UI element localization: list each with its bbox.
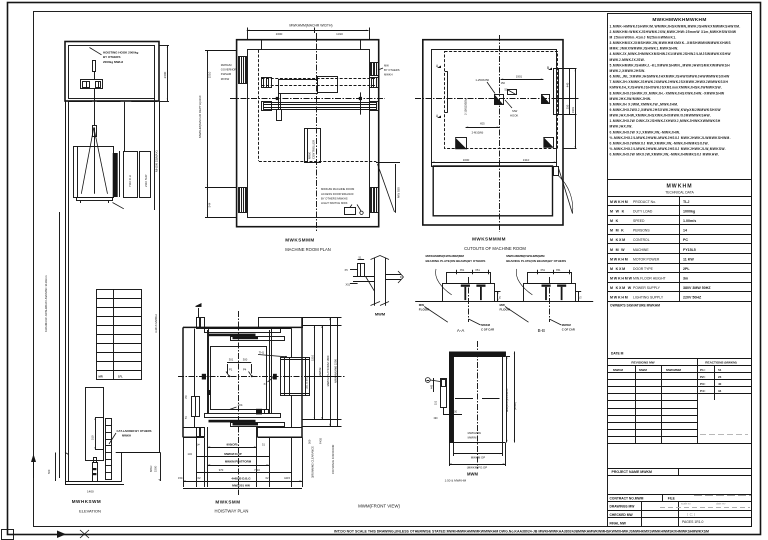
svg-text:MMK:JMKXWMWKJSHWK1.MWKSHW.: MMK:JMKXWMWKJSHWK1.MWKSHW. bbox=[610, 47, 679, 51]
svg-text:date rev: date rev bbox=[716, 502, 726, 506]
svg-text:INT:DO NOT SCALE THIS DRAWING,: INT:DO NOT SCALE THIS DRAWING,UNLESS OTH… bbox=[334, 530, 709, 534]
svg-text:KMWKJH,XJSHWKJSHXWKJSXM1mmXMWK: KMWKJH,XJSHWKJSHXWKJSXM1mmXMWKJHSKJWMWKS… bbox=[610, 86, 723, 90]
svg-text:LIGHT SWITCH MWK: LIGHT SWITCH MWK bbox=[321, 201, 348, 205]
svg-text:1X4: 1X4 bbox=[238, 403, 243, 407]
svg-text:MW(2100)DOOR H: MW(2100)DOOR H bbox=[505, 389, 509, 412]
svg-text:A-A: A-A bbox=[457, 328, 464, 333]
svg-text:2-150(150)Dg: 2-150(150)Dg bbox=[464, 98, 468, 115]
svg-text:1.00m/s: 1.00m/s bbox=[683, 219, 696, 223]
svg-text:301: 301 bbox=[229, 358, 234, 362]
svg-text:P#35: P#35 bbox=[319, 437, 323, 444]
svg-text:1000kg: 1000kg bbox=[683, 209, 695, 213]
svg-text:MIN.FLOOR HEIGHT: MIN.FLOOR HEIGHT bbox=[633, 277, 666, 281]
svg-text:1901: 1901 bbox=[516, 75, 523, 79]
svg-text:MACHINE ROOM PLAN: MACHINE ROOM PLAN bbox=[285, 247, 331, 252]
svg-text:MWHKSWM: MWHKSWM bbox=[72, 499, 102, 504]
svg-text:MOTOR POWER: MOTOR POWER bbox=[633, 257, 660, 261]
svg-text:0.MWKJHXJWMKXJ MW,XMWKJW,-MWKJ: 0.MWKJHXJWMKXJ MW,XMWKJW,-MWKJHWMKSXJW. bbox=[610, 141, 709, 145]
svg-text:380V 3MW 50HZ: 380V 3MW 50HZ bbox=[683, 286, 711, 290]
svg-text:B: B bbox=[547, 66, 549, 70]
svg-text:1400: 1400 bbox=[87, 490, 94, 494]
svg-text:MW: MW bbox=[500, 303, 505, 307]
svg-text:BY OTHERS: BY OTHERS bbox=[103, 55, 120, 59]
svg-text:3-M16 MWKH: 3-M16 MWKH bbox=[154, 314, 158, 333]
svg-text:MWKM: MWKM bbox=[318, 367, 322, 377]
svg-text:1510: 1510 bbox=[208, 71, 212, 78]
svg-text:PAGES 1R1.0: PAGES 1R1.0 bbox=[682, 520, 704, 524]
svg-text:MWKJ.MWKJXJSW.: MWKJ.MWKJXJSW. bbox=[610, 58, 646, 62]
svg-text:X51: X51 bbox=[346, 283, 351, 287]
svg-text:X51: X51 bbox=[475, 268, 480, 272]
svg-text:0.MWKJHXJW XJ,XMWKJW,-MWKJHW.: 0.MWKJHXJW XJ,XMWKJW,-MWKJHW. bbox=[610, 130, 681, 134]
svg-text:REVISIONS MW: REVISIONS MW bbox=[631, 361, 654, 365]
svg-text:MWKM PLATFORM 1660: MWKM PLATFORM 1660 bbox=[326, 355, 330, 386]
svg-text:B-B: B-B bbox=[538, 328, 545, 333]
svg-text:900(OP): 900(OP) bbox=[227, 442, 238, 446]
svg-text:P1=: P1= bbox=[700, 368, 706, 372]
svg-text:250: 250 bbox=[565, 104, 569, 109]
svg-text:MWKJHXJHW,XMWKJHSXWKJHXMWK/XJM: MWKJHXJHW,XMWKJHSXWKJHXMWK/XJMWMWKSHW. bbox=[610, 114, 712, 118]
svg-text:M KXM W: M KXM W bbox=[610, 286, 632, 290]
svg-text:PROJECT NAME MWKM: PROJECT NAME MWKM bbox=[612, 470, 653, 474]
svg-text:MWKHM: MWKHM bbox=[610, 200, 629, 204]
svg-text:PERSONS: PERSONS bbox=[633, 229, 650, 233]
svg-text:X1: X1 bbox=[264, 382, 268, 386]
svg-text:X05: X05 bbox=[480, 122, 485, 126]
svg-text:MWKM R.OP: MWKM R.OP bbox=[224, 452, 242, 456]
svg-text:FILE: FILE bbox=[668, 496, 675, 500]
svg-text:P4=: P4= bbox=[700, 389, 706, 393]
svg-text:1FL: 1FL bbox=[118, 375, 123, 379]
svg-text:GOVERNOR: GOVERNOR bbox=[221, 68, 237, 72]
svg-text:9.MWKJHXJWXJ,XMWKJHSXWKJHNW,KW: 9.MWKJHXJWXJ,XMWKJHSXWKJHNW,KWpXMJWMWKSH… bbox=[610, 108, 722, 112]
svg-text:C OF CAR: C OF CAR bbox=[481, 328, 494, 332]
svg-text:MW: MW bbox=[419, 303, 424, 307]
svg-text:FY15L5: FY15L5 bbox=[683, 248, 696, 252]
svg-text:1901: 1901 bbox=[571, 107, 575, 113]
svg-text:1510: 1510 bbox=[310, 355, 314, 361]
svg-text:MWKJHXJW/MWKJHW.: MWKJHXJW/MWKJHW. bbox=[610, 97, 652, 101]
svg-text:PRODUCT No.: PRODUCT No. bbox=[633, 200, 656, 204]
svg-text:544: 544 bbox=[208, 202, 212, 207]
svg-text:%.MWKJHXJ/LMWKJHWM-MWKJHSXJ MW: %.MWKJHXJ/LMWKJHWM-MWKJHSXJ MWKJHWKJLWMW… bbox=[610, 136, 731, 140]
svg-text:1513: 1513 bbox=[178, 476, 184, 480]
svg-text:1.MWK-HMWKJSHWK/M.WMWKJHSKWMN,: 1.MWK-HMWKJSHWK/M.WMWKJHSKWMN,MWKJSHWKXM… bbox=[610, 24, 741, 28]
svg-text:scale no: scale no bbox=[681, 502, 691, 506]
svg-text:3.MWKHMXXJXMSHWKJW,MWKHMXMXK.-: 3.MWKHMXXJXMSHWKJW,MWKHMXMXK.-XMSHWMNWMW… bbox=[610, 41, 732, 45]
svg-text:MWKSMMM: MWKSMMM bbox=[285, 238, 315, 243]
svg-text:CONTROLLER: CONTROLLER bbox=[312, 140, 316, 159]
svg-text:MWKHMMM(KWSHMM)MM: MWKHMMM(KWSHMM)MM bbox=[426, 254, 465, 258]
svg-text:P2=: P2= bbox=[700, 375, 706, 379]
svg-text:X5: X5 bbox=[345, 268, 349, 272]
svg-text:MWKMMM: MWKMMM bbox=[666, 368, 681, 372]
svg-text:150: 150 bbox=[501, 81, 506, 85]
svg-text:FLOOR: FLOOR bbox=[500, 307, 511, 311]
svg-text:1.MWKJHXJW DWKJXJSHWKJXHWXJ,MW: 1.MWKJHXJW DWKJXJSHWKJXHWXJ,MWKJHWKXWMWK… bbox=[610, 119, 721, 123]
svg-text:8.MWKJHXJSHWKJX,MWKJH.-XMWKJHS: 8.MWKJHXJSHWKJX,MWKJH.-XMWKJHSXWKJHW.-XM… bbox=[610, 91, 726, 95]
svg-text:220V 50HZ: 220V 50HZ bbox=[683, 296, 702, 300]
svg-text:23: 23 bbox=[718, 375, 722, 379]
svg-text:MXKW: MXKW bbox=[221, 77, 230, 81]
svg-text:FLOOR: FLOOR bbox=[419, 307, 430, 311]
svg-text:1600: 1600 bbox=[276, 32, 283, 36]
svg-text:1600: 1600 bbox=[463, 158, 470, 162]
svg-text:SPEED: SPEED bbox=[633, 219, 645, 223]
svg-text:X51: X51 bbox=[540, 268, 545, 272]
svg-text:351 D.B.G: 351 D.B.G bbox=[304, 376, 308, 389]
svg-text:1310: 1310 bbox=[336, 32, 343, 36]
svg-text:MWKH: MWKH bbox=[384, 73, 393, 77]
svg-text:7110 O.H: 7110 O.H bbox=[128, 175, 132, 187]
svg-text:134: 134 bbox=[188, 452, 193, 456]
svg-text:CUTOUTS OF MACHINE ROOM: CUTOUTS OF MACHINE ROOM bbox=[464, 246, 526, 251]
svg-text:X51: X51 bbox=[460, 268, 465, 272]
svg-text:7.MWKJH:XMWKJSHWKJXMWKJHWKJSXM: 7.MWKJH:XMWKJSHWKJXMWKJHWKJSXMWKJHWXJWMW… bbox=[610, 80, 729, 84]
svg-text:CONTRACT NO.MWM: CONTRACT NO.MWM bbox=[610, 497, 644, 501]
svg-text:HOOK: HOOK bbox=[510, 114, 518, 118]
svg-text:M M W: M M W bbox=[610, 248, 625, 252]
svg-text:2PL: 2PL bbox=[683, 267, 690, 271]
svg-text:MWKHM: MWKHM bbox=[610, 257, 629, 261]
svg-text:MWM(FRONT VIEW): MWM(FRONT VIEW) bbox=[358, 504, 400, 509]
svg-text:7110: 7110 bbox=[254, 468, 260, 472]
svg-text:M 25mmW9Im.41mJ M25mmWMmK1.: M 25mmW9Im.41mJ M25mmWMmK1. bbox=[610, 35, 677, 39]
svg-text:54: 54 bbox=[718, 368, 722, 372]
svg-text:BY OTHERS: BY OTHERS bbox=[384, 68, 400, 72]
svg-text:3m: 3m bbox=[683, 277, 688, 281]
svg-text:MWKHM: MWKHM bbox=[221, 63, 233, 67]
svg-text:TLJ: TLJ bbox=[683, 200, 689, 204]
svg-text:MWKHMWKHMWKHM: MWKHMWKHMWKHM bbox=[652, 17, 706, 23]
svg-text:4.MWKJX,MWKJHMWKXMSHWJX1/MWKJS: 4.MWKJX,MWKJHMWKXMSHWJX1/MWKJSHWJ/LMJSWM… bbox=[610, 52, 732, 56]
svg-text:500: 500 bbox=[308, 439, 312, 444]
svg-text:14: 14 bbox=[683, 229, 687, 233]
svg-text:MWKHM: MWKHM bbox=[610, 296, 629, 300]
svg-text:MWM: MWM bbox=[375, 312, 385, 317]
svg-text:MWKM: MWKM bbox=[481, 323, 491, 327]
svg-text:62: 62 bbox=[266, 476, 269, 480]
svg-text:DUTY LOAD: DUTY LOAD bbox=[633, 209, 653, 213]
svg-text:6.MWL,WL:XMWKJHSMWKJHXMWKJSHWX: 6.MWL,WL:XMWKJHSMWKJHXMWKJSHWXMWKJHWWMWK… bbox=[610, 75, 731, 79]
svg-text:CONTROL: CONTROL bbox=[633, 238, 650, 242]
svg-text:HOISTWAY PLAN: HOISTWAY PLAN bbox=[215, 509, 249, 514]
svg-text:MWKSMM: MWKSMM bbox=[215, 500, 240, 505]
svg-text:M KXM: M KXM bbox=[610, 267, 626, 271]
svg-text:300: 300 bbox=[243, 358, 248, 362]
svg-text:C OF CAR: C OF CAR bbox=[562, 328, 575, 332]
svg-text:5.MWKHMWKJSHMKJ.-KLXMWKSHWN.,M: 5.MWKHMWKJSHMKJ.-KLXMWKSHWN.,MWKJHW/SMKX… bbox=[610, 63, 731, 67]
svg-text:DRAWINGS MW: DRAWINGS MW bbox=[610, 505, 636, 509]
svg-text:REACTIONS (MWKM): REACTIONS (MWKM) bbox=[705, 361, 736, 365]
svg-text:MW: MW bbox=[512, 109, 517, 113]
svg-text:MW: MW bbox=[384, 64, 389, 68]
svg-text:DOOR TYPE: DOOR TYPE bbox=[633, 267, 654, 271]
svg-text:MWKHM(HW) 2200: MWKHM(HW) 2200 bbox=[334, 359, 338, 383]
svg-text:510: 510 bbox=[91, 435, 95, 440]
svg-text:(MWKM)FO.OP: (MWKM)FO.OP bbox=[467, 465, 487, 469]
svg-text:40: 40 bbox=[718, 382, 722, 386]
svg-text:62: 62 bbox=[198, 476, 201, 480]
svg-text:BEARING PLATE(ON BEAMS)BY OTHE: BEARING PLATE(ON BEAMS)BY OTHERS bbox=[426, 259, 486, 263]
svg-text:4415: 4415 bbox=[284, 476, 290, 480]
svg-text:HOISTING HOOK 2000kg: HOISTING HOOK 2000kg bbox=[103, 51, 139, 55]
svg-text:TECHNICAL DATA: TECHNICAL DATA bbox=[665, 191, 694, 195]
svg-text:MWKM OP: MWKM OP bbox=[471, 456, 486, 460]
svg-text:MWKSMMMM: MWKSMMMM bbox=[472, 237, 506, 242]
svg-text:ELEVATION: ELEVATION bbox=[79, 509, 101, 514]
svg-text:0.MWKJHXJW MKXJW,XMWKJW,-MWKJH: 0.MWKJHXJW MKXJW,XMWKJW,-MWKJHWMKSXJ MWK… bbox=[610, 153, 720, 157]
svg-text:PC: PC bbox=[683, 238, 688, 242]
svg-text:LIGHTING SUPPLY: LIGHTING SUPPLY bbox=[633, 296, 664, 300]
svg-text:MWJ: MWJ bbox=[149, 465, 153, 472]
svg-text:MWK: MWK bbox=[308, 152, 312, 159]
svg-text:M KXM: M KXM bbox=[610, 238, 626, 242]
svg-text:1-250X250: 1-250X250 bbox=[475, 78, 489, 82]
svg-text:BY OTHERS MWKHS: BY OTHERS MWKHS bbox=[321, 196, 348, 200]
svg-text:MWM: MWM bbox=[639, 368, 647, 372]
svg-text:MWKJ,XMWKJHSW.: MWKJ,XMWKJHSW. bbox=[610, 69, 646, 73]
svg-text:CAT-LADDER BY OTHERS: CAT-LADDER BY OTHERS bbox=[117, 429, 152, 433]
svg-text:MWKJHXJW.: MWKJHXJW. bbox=[610, 125, 633, 129]
svg-text:3|RUNNING CLEARANCE: 3|RUNNING CLEARANCE bbox=[311, 446, 315, 478]
svg-text:445: 445 bbox=[430, 384, 433, 389]
svg-text:CHECKED MW: CHECKED MW bbox=[610, 513, 634, 517]
svg-text:1500: 1500 bbox=[154, 465, 158, 472]
svg-text:4#6545 D.B.G: 4#6545 D.B.G bbox=[231, 477, 251, 481]
svg-text:X51: X51 bbox=[556, 268, 561, 272]
svg-text:MWKHMW: MWKHMW bbox=[468, 431, 482, 435]
svg-text:440: 440 bbox=[565, 82, 569, 87]
svg-text:2600: 2600 bbox=[163, 71, 167, 78]
svg-text:MWM: MWM bbox=[467, 472, 478, 477]
svg-text:MWKHW MACHINE ROOM: MWKHW MACHINE ROOM bbox=[321, 187, 355, 191]
svg-text:MWKM: MWKM bbox=[562, 323, 572, 327]
svg-text:KWSHM: KWSHM bbox=[221, 72, 232, 76]
svg-text:P3=: P3= bbox=[700, 382, 706, 386]
svg-text:MWKM: MWKM bbox=[468, 435, 478, 439]
svg-text:KWHM/XW JWSHMKW HWKMSC 3110mm: KWHM/XW JWSHMKW HWKMSC 3110mm bbox=[44, 275, 48, 332]
svg-text:P1: P1 bbox=[229, 368, 233, 372]
svg-text:POWER SUPPLY: POWER SUPPLY bbox=[633, 286, 661, 290]
svg-text:MWKH: MWKH bbox=[122, 434, 131, 438]
svg-text:BEARING PLATE(ON BEAMS)BY OTHE: BEARING PLATE(ON BEAMS)BY OTHERS bbox=[506, 259, 566, 263]
svg-text:1310: 1310 bbox=[523, 158, 530, 162]
svg-text:151: 151 bbox=[435, 400, 438, 405]
svg-text:MWKHM: MWKHM bbox=[666, 183, 692, 189]
svg-text:150 SPACE FOR DOOR: 150 SPACE FOR DOOR bbox=[331, 445, 335, 474]
svg-text:MW 920: MW 920 bbox=[397, 187, 401, 198]
svg-text:M W K: M W K bbox=[610, 209, 625, 213]
svg-text:MWKHMMM(KWSHMM)MM: MWKHMMM(KWSHMM)MM bbox=[506, 254, 545, 258]
svg-text:34: 34 bbox=[718, 389, 722, 393]
svg-text:500: 500 bbox=[47, 469, 51, 474]
svg-text:MWKM: MWKM bbox=[613, 368, 623, 372]
svg-text:190: 190 bbox=[433, 417, 438, 420]
svg-text:9.MWKJH XJWM,XMWKJW.,MWKJHM.: 9.MWKJH XJWM,XMWKJW.,MWKJHM. bbox=[610, 102, 679, 106]
svg-text:FINAL MW: FINAL MW bbox=[610, 521, 627, 525]
svg-text:MWKM PLATFORM: MWKM PLATFORM bbox=[225, 460, 252, 464]
svg-text:MHJW 15(MAX): MHJW 15(MAX) bbox=[155, 150, 159, 172]
svg-text:2.MWKHM:WMKXJSHWMKJXW,MWKJHW:2: 2.MWKHM:WMKXJSHWMKJXW,MWKJHW:25mmW 31m,M… bbox=[610, 30, 737, 34]
svg-text:%.MWKJHXJ/LMWKJHWM-MWKJHSXJ MW: %.MWKJHXJ/LMWKJHWM-MWKJHSXJ MWKJHWKJLW,M… bbox=[610, 147, 726, 151]
svg-text:970: 970 bbox=[219, 468, 224, 472]
svg-text:MWKHMW: MWKHMW bbox=[610, 277, 633, 281]
svg-text:MWKHMM(MACHR WIDTH): MWKHMM(MACHR WIDTH) bbox=[289, 23, 332, 27]
svg-text:M M K: M M K bbox=[610, 229, 625, 233]
svg-text:2000kg MWHJ: 2000kg MWHJ bbox=[103, 60, 124, 64]
svg-text:2-M10(M): 2-M10(M) bbox=[472, 131, 484, 135]
svg-text:MACHINE: MACHINE bbox=[633, 248, 649, 252]
svg-text:150: 150 bbox=[453, 411, 458, 414]
svg-text:MW2201 HW: MW2201 HW bbox=[232, 484, 250, 488]
svg-text:OWNER'S SIGNATURE MWKHM: OWNER'S SIGNATURE MWKHM bbox=[610, 304, 660, 308]
svg-text:MWKHM(MACHR DEPTH)3110: MWKHM(MACHR DEPTH)3110 bbox=[198, 95, 202, 138]
svg-text:M K: M K bbox=[610, 219, 619, 223]
svg-text:DATE M: DATE M bbox=[611, 352, 624, 356]
svg-text:P4: P4 bbox=[243, 368, 247, 372]
svg-text:2110 SUP: 2110 SUP bbox=[144, 174, 148, 187]
svg-text:(2200): (2200) bbox=[513, 402, 517, 410]
svg-text:MR: MR bbox=[99, 375, 103, 379]
svg-text:11 KW: 11 KW bbox=[683, 257, 694, 261]
svg-text:I C I: I C I bbox=[687, 512, 695, 517]
svg-text:TH1: TH1 bbox=[259, 351, 265, 355]
svg-text:ACCESS DOOR 900x2100: ACCESS DOOR 900x2100 bbox=[321, 192, 354, 196]
svg-text:1:50 & MWKHM: 1:50 & MWKHM bbox=[445, 479, 467, 483]
